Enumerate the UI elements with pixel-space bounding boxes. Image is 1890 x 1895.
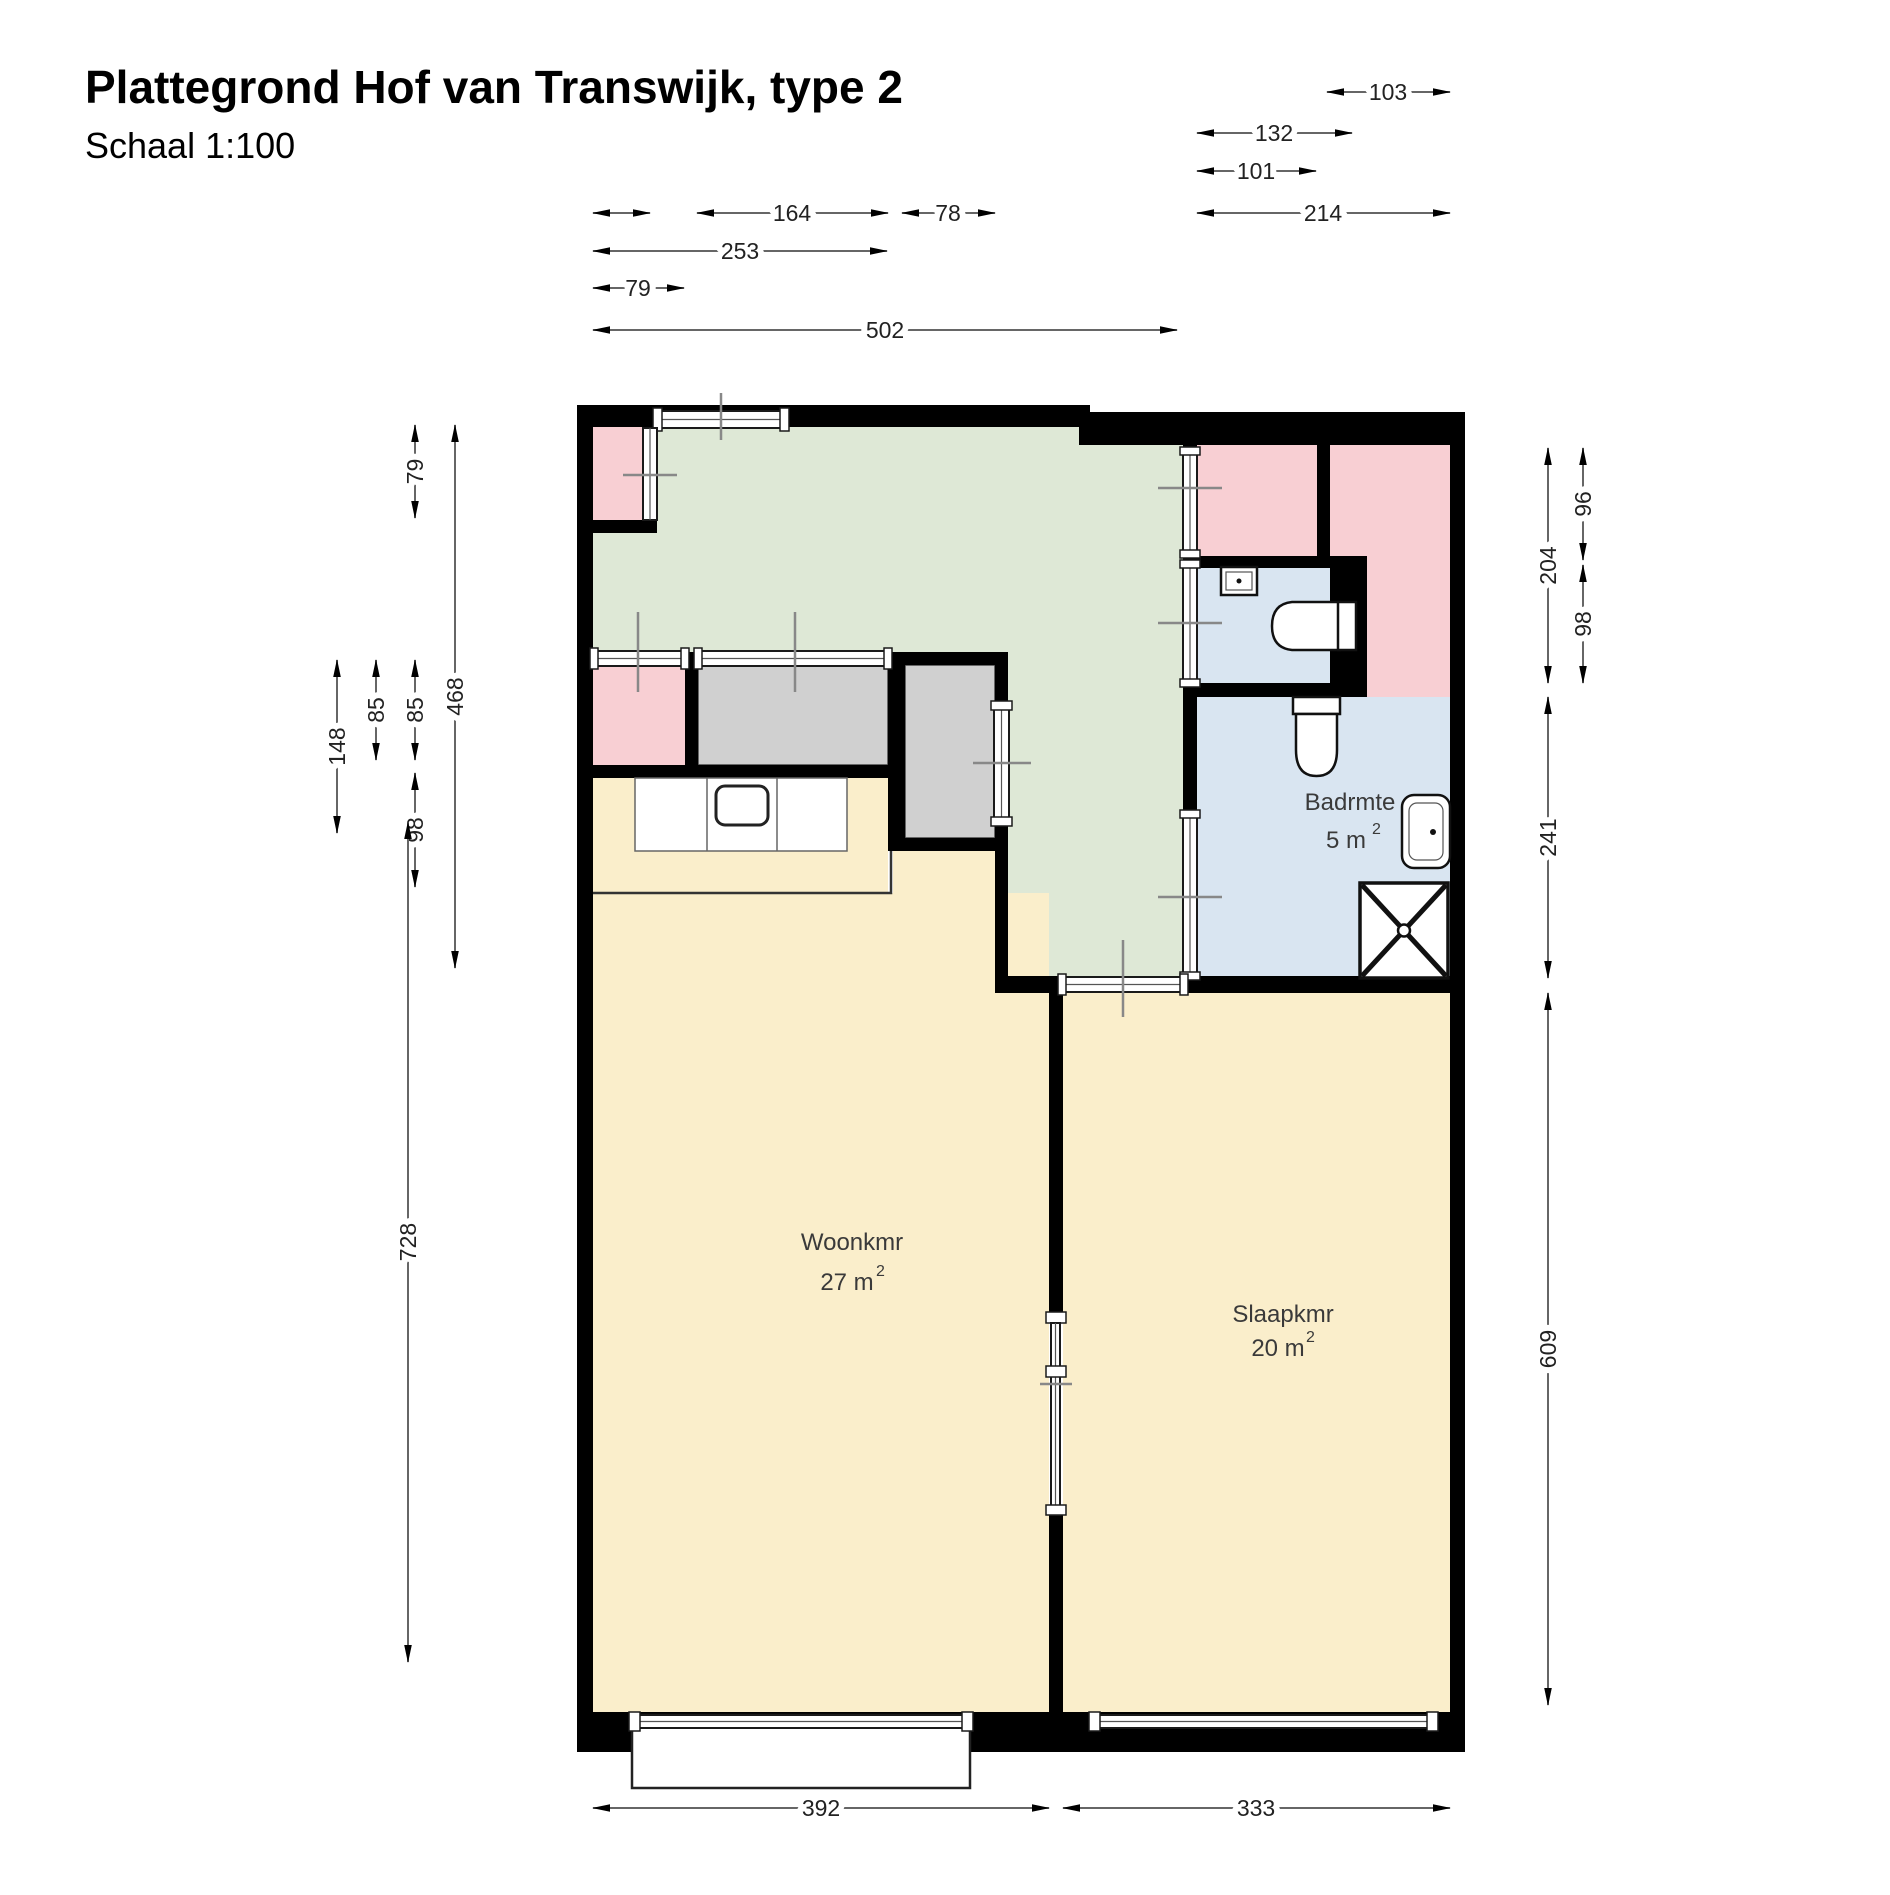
- dim-253: 253: [593, 238, 887, 264]
- wall-left: [577, 405, 593, 1752]
- wall-storage1-storage2: [1317, 445, 1330, 556]
- svg-text:241: 241: [1535, 818, 1561, 856]
- hall-floor: [593, 427, 1183, 665]
- svg-text:392: 392: [802, 1795, 840, 1821]
- dim-103: 103: [1327, 79, 1450, 105]
- svg-text:468: 468: [442, 677, 468, 715]
- kitchen-counter-window: [694, 648, 892, 669]
- dim-728: 728: [395, 822, 421, 1662]
- kitchen-closet-door: [590, 648, 689, 669]
- svg-text:101: 101: [1237, 158, 1275, 184]
- dim-85-b: 85: [402, 660, 428, 760]
- page-subtitle: Schaal 1:100: [85, 125, 295, 166]
- wall-kitchen-bottom: [593, 765, 890, 778]
- wall-cabinet-bottom: [888, 838, 1008, 851]
- dim-609: 609: [1535, 993, 1561, 1705]
- wc-basin: [1221, 567, 1257, 595]
- bedroom-name: Slaapkmr: [1232, 1301, 1333, 1328]
- floor-plan-page: Plattegrond Hof van Transwijk, type 2 Sc…: [0, 0, 1890, 1890]
- dim-101: 101: [1197, 158, 1316, 184]
- floor-plan-drawing: Plattegrond Hof van Transwijk, type 2 Sc…: [0, 0, 1890, 1890]
- svg-text:79: 79: [625, 275, 651, 301]
- dim-468: 468: [442, 425, 468, 968]
- svg-text:609: 609: [1535, 1330, 1561, 1368]
- svg-text:85: 85: [402, 697, 428, 723]
- bathroom-area-exp: 2: [1372, 821, 1381, 838]
- svg-text:103: 103: [1369, 79, 1407, 105]
- storage-room-1-floor: [1197, 445, 1330, 568]
- wall-room-divider-lower: [1049, 1515, 1063, 1712]
- kitchen-sink: [716, 786, 768, 825]
- living-room-name: Woonkmr: [801, 1229, 903, 1256]
- bedroom-area: 20 m: [1251, 1335, 1304, 1362]
- storage-room-2-floor: [1330, 445, 1450, 568]
- svg-text:148: 148: [324, 727, 350, 765]
- svg-text:502: 502: [866, 317, 904, 343]
- svg-text:214: 214: [1304, 200, 1343, 226]
- dim-79-top: 79: [593, 275, 684, 301]
- dim-392: 392: [593, 1795, 1049, 1821]
- hall-cabinet-block: [905, 665, 995, 838]
- living-room-area-exp: 2: [876, 1263, 885, 1280]
- bathroom-sink: [1402, 795, 1450, 868]
- dim-132: 132: [1197, 120, 1352, 146]
- wall-storage1-wc: [1197, 556, 1330, 568]
- svg-text:78: 78: [935, 200, 961, 226]
- shower: [1360, 883, 1448, 978]
- living-room-floor: [593, 893, 1049, 1712]
- dim-333: 333: [1063, 1795, 1450, 1821]
- living-room-window: [629, 1712, 973, 1788]
- svg-text:253: 253: [721, 238, 759, 264]
- bedroom-area-exp: 2: [1306, 1329, 1315, 1346]
- dim-96: 96: [1570, 448, 1596, 560]
- dim-164: 164: [697, 200, 888, 226]
- svg-text:85: 85: [363, 697, 389, 723]
- living-room-area: 27 m: [820, 1269, 873, 1296]
- kitchen-closet-floor: [593, 652, 698, 778]
- wall-cabinet-top: [888, 652, 1008, 665]
- bathroom-name: Badrmte: [1305, 789, 1396, 816]
- svg-text:333: 333: [1237, 1795, 1275, 1821]
- dim-98-right: 98: [1570, 565, 1596, 683]
- dim-502: 502: [593, 317, 1177, 343]
- kitchen-counter-block: [698, 663, 888, 765]
- storage-room-2-lower-floor: [1367, 556, 1450, 697]
- svg-text:204: 204: [1535, 546, 1561, 585]
- dim-214: 214: [1197, 200, 1450, 226]
- dim-148: 148: [324, 660, 350, 833]
- svg-text:164: 164: [773, 200, 812, 226]
- dim-78: 78: [902, 200, 995, 226]
- storage1-door: [1180, 447, 1200, 558]
- svg-text:98: 98: [402, 817, 428, 843]
- kitchen-counter: [635, 778, 847, 851]
- wc-toilet: [1272, 602, 1356, 650]
- dim-241: 241: [1535, 697, 1561, 978]
- bedroom-window: [1089, 1712, 1438, 1731]
- svg-text:132: 132: [1255, 120, 1293, 146]
- dim-79-left: 79: [402, 425, 428, 518]
- svg-text:79: 79: [402, 459, 428, 485]
- wall-cabinet-left: [888, 652, 905, 851]
- wall-right: [1450, 412, 1465, 1752]
- wall-entry-closet-bottom: [593, 520, 657, 533]
- svg-text:98: 98: [1570, 611, 1596, 637]
- dim-204: 204: [1535, 448, 1561, 683]
- svg-text:728: 728: [395, 1223, 421, 1261]
- wall-wc-bathroom: [1197, 683, 1367, 697]
- kitchen-floor-right: [893, 851, 1008, 893]
- page-title: Plattegrond Hof van Transwijk, type 2: [85, 61, 903, 113]
- bathroom-area: 5 m: [1326, 827, 1366, 854]
- bathroom-door: [1180, 810, 1200, 980]
- dim-98-left: 98: [402, 773, 428, 887]
- wall-top-right: [1079, 412, 1465, 445]
- wall-room-divider-upper: [1049, 976, 1063, 1315]
- svg-text:96: 96: [1570, 491, 1596, 517]
- dim-85-a: 85: [363, 660, 389, 760]
- bathroom-toilet: [1293, 697, 1340, 776]
